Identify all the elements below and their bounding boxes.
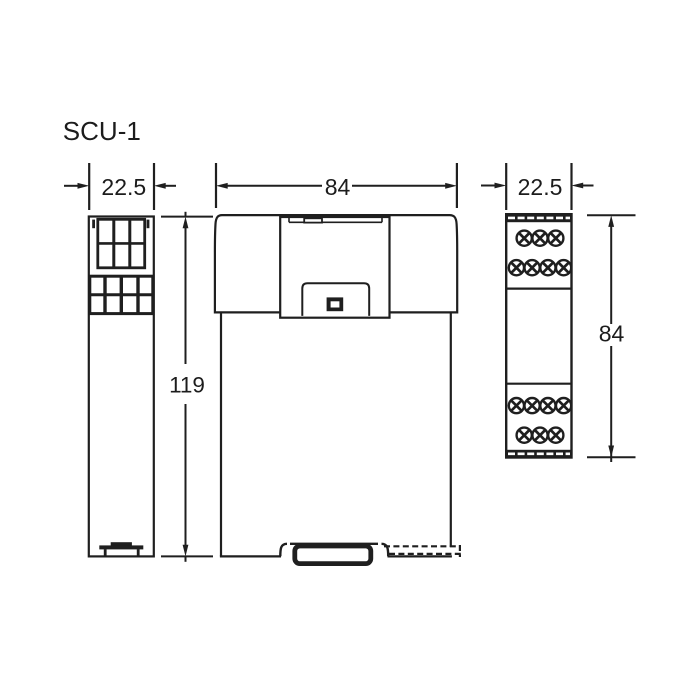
svg-text:22.5: 22.5 <box>101 174 146 200</box>
svg-text:84: 84 <box>599 321 625 347</box>
svg-text:84: 84 <box>325 174 351 200</box>
svg-text:22.5: 22.5 <box>518 174 563 200</box>
svg-text:SCU-1: SCU-1 <box>63 116 141 146</box>
svg-text:119: 119 <box>169 373 205 398</box>
